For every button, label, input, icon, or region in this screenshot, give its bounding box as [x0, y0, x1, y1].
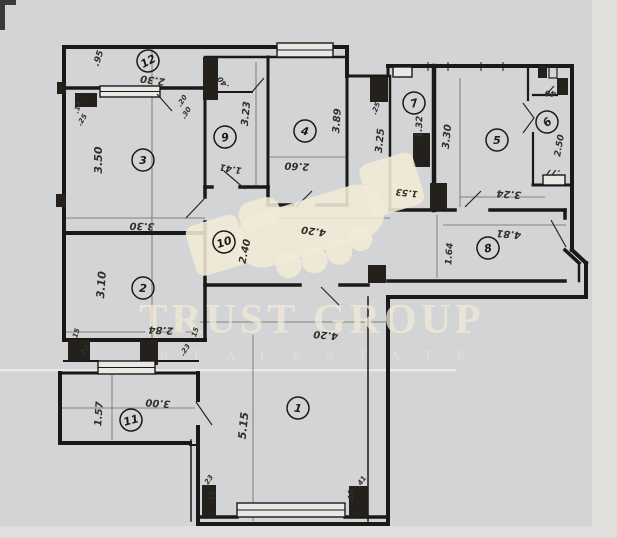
dimension-label: 1.32	[415, 116, 426, 139]
dimension-label: 2.84	[148, 323, 173, 335]
room-number-text: 5	[493, 134, 501, 147]
paper-right-margin	[592, 0, 617, 538]
watermark-tagline: R E A L E S T A T E	[160, 348, 476, 363]
room-number-text: 2	[139, 282, 148, 296]
dimension-label: 4.20	[313, 328, 340, 341]
dimension-label: 3.24	[496, 187, 521, 200]
dimension-label: 3.30	[129, 220, 154, 232]
dimension-label: .10	[347, 489, 355, 502]
dimension-label: .40	[544, 88, 559, 98]
floor-plan-drawing: TRUST GROUP R E A L E S T A T E 12345678…	[0, 0, 617, 538]
paper-bottom-margin	[0, 526, 617, 538]
dimension-label: .11	[208, 490, 216, 503]
dimension-label: 3.10	[94, 270, 109, 298]
dimension-label: 2.60	[284, 159, 309, 171]
room-number-text: 3	[139, 154, 147, 167]
dimension-label: 3.50	[92, 146, 105, 173]
dimension-label: 3.89	[331, 108, 344, 133]
dimension-label: 1.64	[444, 242, 456, 265]
notch-window	[393, 67, 412, 77]
dimension-label: 3.00	[145, 396, 170, 409]
dimension-label: .77	[545, 168, 560, 178]
dimension-label: 4.81	[496, 227, 523, 240]
dimension-label: 1.57	[93, 401, 106, 426]
scanned-floor-plan-page: TRUST GROUP R E A L E S T A T E 12345678…	[0, 0, 617, 538]
